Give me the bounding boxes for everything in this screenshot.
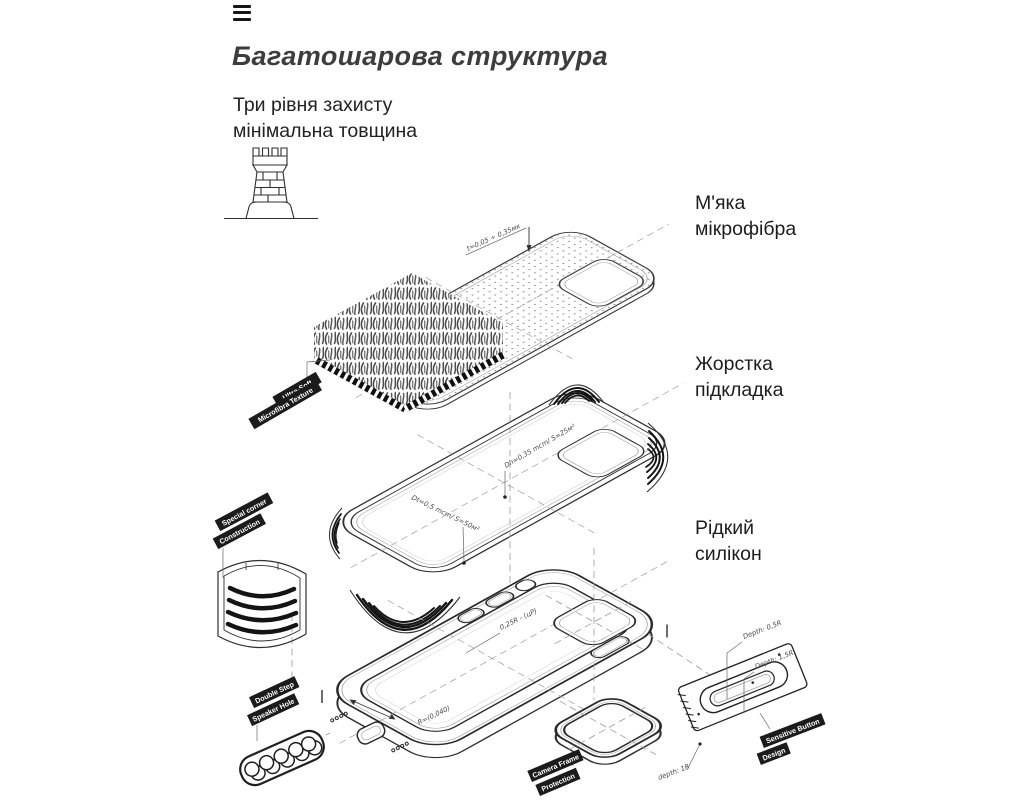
annotation-depth-bottom: depth: 1R xyxy=(657,742,702,781)
castle-tower-icon xyxy=(224,148,318,219)
tag-double-step: Double Step Speaker Hole xyxy=(247,676,299,741)
label-hard-lining: Жорстка підкладка xyxy=(695,351,783,403)
depth-bottom-annotation: depth: 1R xyxy=(657,762,691,781)
corner-piece-detail xyxy=(218,560,306,647)
speaker-strip-detail xyxy=(236,726,329,789)
label-liquid-silicone-line1: Рідкий xyxy=(695,515,762,541)
hamburger-bar xyxy=(233,5,251,8)
subtitle-line-2: мінімальна товщина xyxy=(233,118,417,144)
subtitle-line-1: Три рівня захисту xyxy=(233,92,417,118)
hamburger-menu-icon[interactable] xyxy=(233,5,251,22)
label-hard-lining-line2: підкладка xyxy=(695,377,783,403)
label-liquid-silicone-line2: силікон xyxy=(695,541,762,567)
label-hard-lining-line1: Жорстка xyxy=(695,351,783,377)
exploded-layers-diagram: t=0,05 ÷ 0,35мк xyxy=(0,0,1024,800)
label-soft-microfiber-line1: М'яка xyxy=(695,190,796,216)
hamburger-bar xyxy=(233,18,251,21)
speaker-perforations-left xyxy=(330,712,347,723)
tag-ultra-soft: Ultra-Soft Microfibra Texture xyxy=(248,360,330,429)
product-infographic-page: t=0,05 ÷ 0,35мк xyxy=(0,0,1024,800)
page-subtitle: Три рівня захисту мінімальна товщина xyxy=(233,92,417,144)
corner-ripples-west xyxy=(329,508,342,559)
label-soft-microfiber: М'яка мікрофібра xyxy=(695,190,796,242)
depth-top-annotation: Depth: 0,5R xyxy=(742,619,783,641)
tag-sensitive-button-line1: Sensitive Button xyxy=(765,717,821,746)
tag-sensitive-button: Sensitive Button Design xyxy=(757,713,826,765)
page-title: Багатошарова структура xyxy=(232,40,608,72)
label-soft-microfiber-line2: мікрофібра xyxy=(695,216,796,242)
label-liquid-silicone: Рідкий силікон xyxy=(695,515,762,567)
tag-camera-frame: Camera Frame Protection xyxy=(527,749,583,796)
annotation-thickness: t=0,05 ÷ 0,35мк xyxy=(466,222,532,255)
thickness-annotation: t=0,05 ÷ 0,35мк xyxy=(466,222,523,253)
hamburger-bar xyxy=(233,11,251,14)
